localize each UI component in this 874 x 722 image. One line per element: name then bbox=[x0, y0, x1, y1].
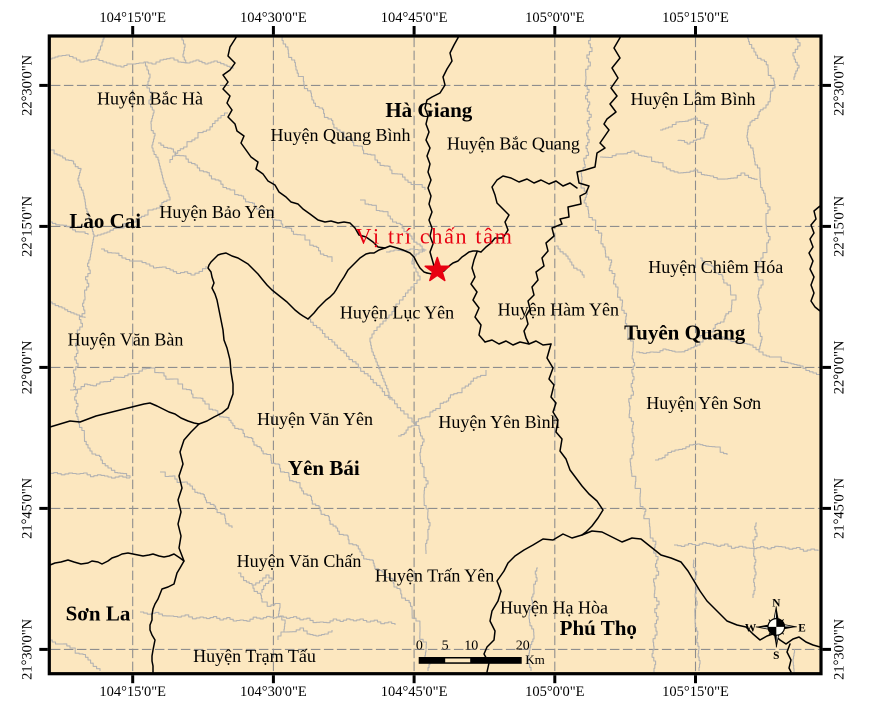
svg-text:105°15'0"E: 105°15'0"E bbox=[662, 684, 729, 700]
svg-text:104°45'0"E: 104°45'0"E bbox=[381, 10, 448, 26]
svg-text:21°45'0"N: 21°45'0"N bbox=[832, 477, 848, 539]
svg-text:Km: Km bbox=[525, 652, 545, 667]
svg-text:22°30'0"N: 22°30'0"N bbox=[20, 54, 36, 116]
svg-text:Lào Cai: Lào Cai bbox=[69, 209, 141, 233]
svg-text:S: S bbox=[773, 650, 779, 662]
svg-text:21°30'0"N: 21°30'0"N bbox=[832, 618, 848, 680]
svg-text:21°30'0"N: 21°30'0"N bbox=[20, 618, 36, 680]
svg-text:Huyện Văn Yên: Huyện Văn Yên bbox=[257, 409, 373, 429]
svg-text:105°15'0"E: 105°15'0"E bbox=[662, 10, 729, 26]
svg-text:Hà Giang: Hà Giang bbox=[385, 98, 472, 122]
svg-text:22°0'0"N: 22°0'0"N bbox=[20, 340, 36, 394]
svg-text:5: 5 bbox=[442, 639, 449, 654]
svg-text:Huyện Chiêm Hóa: Huyện Chiêm Hóa bbox=[648, 257, 783, 277]
svg-text:22°0'0"N: 22°0'0"N bbox=[832, 340, 848, 394]
svg-text:104°45'0"E: 104°45'0"E bbox=[381, 684, 448, 700]
svg-text:104°15'0"E: 104°15'0"E bbox=[99, 684, 166, 700]
svg-text:Huyện Bắc Hà: Huyện Bắc Hà bbox=[97, 88, 203, 108]
svg-text:Yên Bái: Yên Bái bbox=[288, 456, 360, 480]
svg-text:Huyện Yên Sơn: Huyện Yên Sơn bbox=[646, 393, 761, 413]
svg-text:W: W bbox=[745, 623, 757, 635]
svg-text:Tuyên Quang: Tuyên Quang bbox=[624, 321, 746, 345]
svg-text:22°15'0"N: 22°15'0"N bbox=[832, 195, 848, 257]
svg-text:104°30'0"E: 104°30'0"E bbox=[240, 10, 307, 26]
svg-text:Phú Thọ: Phú Thọ bbox=[560, 616, 637, 640]
svg-text:Sơn La: Sơn La bbox=[66, 602, 131, 626]
svg-text:105°0'0"E: 105°0'0"E bbox=[525, 684, 585, 700]
svg-text:Huyện Yên Bình: Huyện Yên Bình bbox=[438, 412, 559, 432]
svg-text:22°15'0"N: 22°15'0"N bbox=[20, 195, 36, 257]
svg-text:10: 10 bbox=[464, 639, 478, 654]
svg-text:E: E bbox=[798, 623, 806, 635]
svg-text:Huyện Hàm Yên: Huyện Hàm Yên bbox=[498, 300, 619, 320]
svg-text:104°15'0"E: 104°15'0"E bbox=[99, 10, 166, 26]
svg-text:Huyện Trạm Tấu: Huyện Trạm Tấu bbox=[193, 646, 316, 666]
svg-text:N: N bbox=[772, 598, 781, 610]
svg-text:Huyện Lục Yên: Huyện Lục Yên bbox=[340, 302, 454, 322]
svg-text:22°30'0"N: 22°30'0"N bbox=[832, 54, 848, 116]
svg-text:Huyện Quang Bình: Huyện Quang Bình bbox=[271, 125, 411, 145]
svg-text:0: 0 bbox=[416, 639, 423, 654]
svg-text:Huyện Trấn Yên: Huyện Trấn Yên bbox=[375, 565, 494, 585]
svg-text:Huyện Lâm Bình: Huyện Lâm Bình bbox=[631, 89, 756, 109]
svg-text:104°30'0"E: 104°30'0"E bbox=[240, 684, 307, 700]
svg-text:Huyện Hạ Hòa: Huyện Hạ Hòa bbox=[500, 598, 608, 618]
svg-text:Huyện Bảo Yên: Huyện Bảo Yên bbox=[159, 202, 274, 222]
svg-text:Huyện Văn Bàn: Huyện Văn Bàn bbox=[68, 330, 184, 350]
svg-text:Vị trí chấn tâm: Vị trí chấn tâm bbox=[355, 224, 513, 249]
svg-text:105°0'0"E: 105°0'0"E bbox=[525, 10, 585, 26]
svg-text:Huyện Văn Chấn: Huyện Văn Chấn bbox=[237, 551, 362, 571]
svg-text:21°45'0"N: 21°45'0"N bbox=[20, 477, 36, 539]
svg-text:Huyện Bắc Quang: Huyện Bắc Quang bbox=[447, 134, 580, 154]
